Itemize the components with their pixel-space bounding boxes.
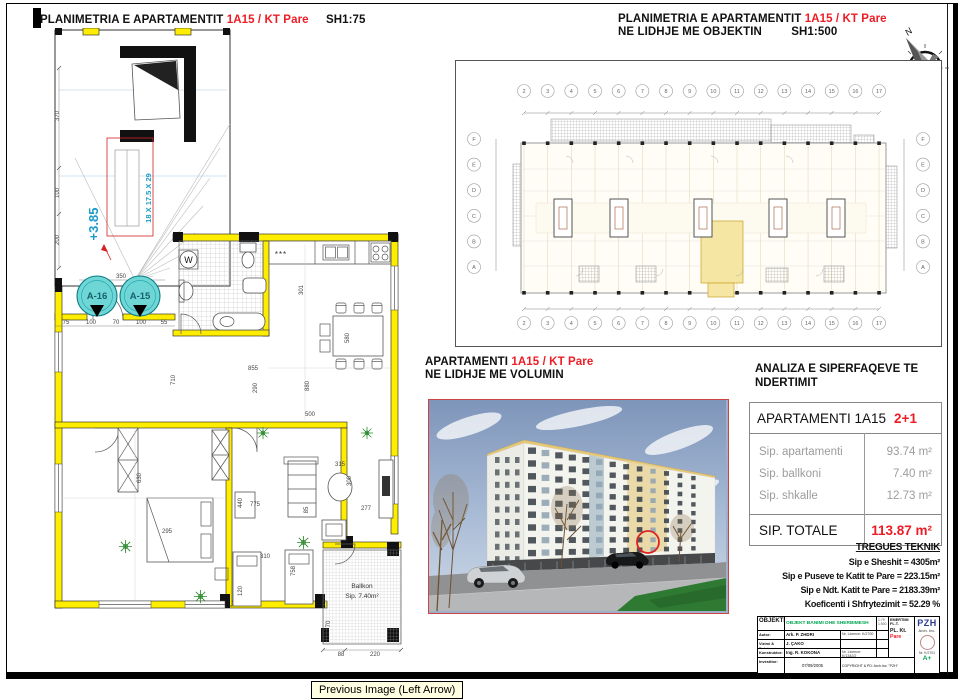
dining-table [333, 316, 383, 356]
svg-text:9: 9 [688, 89, 691, 95]
svg-text:9: 9 [688, 321, 691, 327]
armchair [322, 520, 346, 540]
row-extra: Nr. Licence: K/1342/2 [840, 648, 876, 657]
svg-text:12: 12 [758, 321, 764, 327]
area-table-header: APARTAMENTI 1A15 2+1 [750, 403, 941, 434]
objekti-label: OBJEKTI: [758, 617, 784, 630]
svg-text:C: C [472, 214, 476, 220]
objekti-value: OBJEKT BANIMI DHE SHERBIMESH [784, 617, 876, 630]
image-viewer-canvas: { "frame": { "tooltip": "Previous Image … [0, 0, 970, 691]
left-plan-title: PLANIMETRIA E APARTAMENTIT 1A15 / KT Par… [40, 14, 366, 26]
row-extra: Nr. Licence: K/2700 [840, 630, 876, 639]
tregues-line: Sip e Puseve te Katit te Pare = 223.15m² [748, 569, 940, 583]
svg-text:B: B [921, 239, 925, 245]
building-plan: 2233445566778899101011111212131314141515… [456, 61, 939, 344]
area-table-body: Sip. apartamenti 93.74 m² Sip. ballkoni … [750, 434, 941, 514]
table-row: Sip. ballkoni 7.40 m² [750, 463, 941, 485]
svg-text:710: 710 [171, 374, 177, 385]
stair-spec-label: 18 X 17.5 X 29 [144, 173, 153, 223]
emertimi-value: PL. Kt. Pare [890, 628, 913, 640]
kitchen-unit-label: *** [275, 250, 287, 259]
small-tub-icon [243, 278, 266, 293]
plant-icon [257, 427, 269, 439]
balcony-area: Sip. 7.40m² [345, 593, 379, 600]
balcony-name: Ballkon [351, 583, 373, 590]
svg-text:12: 12 [758, 89, 764, 95]
svg-text:2: 2 [522, 321, 525, 327]
svg-text:70: 70 [113, 320, 120, 326]
dining-area [320, 303, 383, 369]
row-extra [840, 639, 876, 648]
svg-text:295: 295 [162, 529, 173, 535]
svg-text:120: 120 [238, 585, 244, 596]
tregues-line: Sip e Sheshit = 4305m² [748, 555, 940, 569]
axis-a15-label: A-15 [130, 291, 151, 302]
apartment-type-badge: 2+1 [894, 411, 917, 426]
elevator-shaft [120, 46, 196, 142]
bathroom: W [179, 241, 266, 330]
tregues-heading: TREGUES TEKNIK [748, 542, 940, 553]
svg-text:7: 7 [641, 89, 644, 95]
living-room [284, 457, 393, 540]
washbasin-icon [179, 282, 193, 300]
svg-text:17: 17 [876, 89, 882, 95]
tregues-line: Sip e Ndt. Katit te Pare = 2183.39m² [748, 583, 940, 597]
svg-text:290: 290 [253, 382, 259, 393]
bedroom-1 [118, 428, 228, 580]
svg-text:500: 500 [305, 412, 316, 418]
svg-text:100: 100 [55, 187, 61, 198]
svg-text:580: 580 [345, 332, 351, 343]
svg-text:88: 88 [338, 652, 345, 658]
svg-text:315: 315 [335, 462, 346, 468]
frame-inner-line [947, 4, 948, 674]
row-value: Ark. P. ZHDRI [784, 630, 840, 639]
svg-text:6: 6 [617, 89, 620, 95]
plant-icon [119, 540, 132, 553]
svg-text:11: 11 [734, 321, 740, 327]
plant-icon [297, 536, 310, 549]
investitor-label: Investitor: [758, 657, 784, 673]
emertimi-cell: EMERTIMI FL.T. PL. Kt. Pare [888, 617, 914, 657]
svg-text:16: 16 [852, 321, 858, 327]
row-value: Ing. R. KOKONA [784, 648, 840, 657]
pzh-logo: PZH [916, 618, 938, 628]
axis-bubble-a16: A-16 [77, 276, 117, 317]
svg-text:70: 70 [326, 620, 332, 627]
svg-text:220: 220 [370, 652, 381, 658]
bathtub-icon [213, 313, 265, 330]
row-value: J. ÇAKO [784, 639, 840, 648]
pzh-mark: A+ [916, 655, 938, 662]
svg-text:85: 85 [304, 506, 310, 513]
table-row: Sip. shkalle 12.73 m² [750, 485, 941, 507]
volume-title-accent: 1A15 / KT Pare [511, 356, 593, 368]
svg-text:758: 758 [291, 565, 297, 576]
svg-text:370: 370 [55, 110, 61, 121]
svg-text:100: 100 [86, 320, 97, 326]
svg-text:5: 5 [593, 321, 596, 327]
total-row: SIP. TOTALE 113.87 m² [750, 514, 941, 545]
svg-text:E: E [472, 163, 476, 169]
row-label: Autor: [758, 630, 784, 639]
table-divider [864, 433, 865, 545]
pzh-logo-cell: PZH Arch. Inc. Nr. K/2701 A+ [914, 617, 939, 673]
pzh-stamp-icon [920, 635, 935, 650]
table-row: Sip. apartamenti 93.74 m² [750, 441, 941, 463]
svg-text:B: B [472, 239, 476, 245]
svg-text:4: 4 [570, 321, 573, 327]
axis-bubble-a15: A-15 [120, 276, 160, 317]
balcony: Ballkon Sip. 7.40m² [323, 550, 401, 644]
north-label: N [903, 26, 915, 38]
svg-text:8: 8 [664, 321, 667, 327]
left-plan-scale: SH1:75 [326, 14, 366, 26]
svg-text:E: E [921, 163, 925, 169]
svg-text:310: 310 [260, 554, 271, 560]
row-label: Vizimi & Detaje: [758, 639, 784, 648]
svg-text:880: 880 [305, 380, 311, 391]
svg-text:13: 13 [781, 89, 787, 95]
svg-text:630: 630 [137, 472, 143, 483]
spacer-cell [876, 648, 888, 657]
svg-text:15: 15 [829, 89, 835, 95]
kitchen: *** [269, 241, 391, 264]
left-plan-title-accent: 1A15 / KT Pare [227, 14, 309, 26]
pzh-sub: Arch. Inc. [916, 628, 938, 633]
building-render-photo [428, 399, 729, 614]
svg-text:2: 2 [522, 89, 525, 95]
volume-title-text: APARTAMENTI [425, 356, 508, 368]
toilet-icon [240, 243, 256, 252]
row-label: Konstruktor: [758, 648, 784, 657]
apartment-floor-plan: +3.85 18 X 17.5 X 29 [35, 28, 420, 663]
svg-text:14: 14 [805, 321, 811, 327]
svg-text:D: D [472, 188, 476, 194]
date-cell: 07/09/2005 [784, 657, 840, 673]
svg-text:C: C [921, 214, 925, 220]
svg-text:16: 16 [852, 89, 858, 95]
svg-text:300: 300 [347, 475, 353, 486]
analysis-heading-line2: NDERTIMIT [755, 376, 945, 390]
svg-text:6: 6 [617, 321, 620, 327]
left-plan-title-text: PLANIMETRIA E APARTAMENTIT [40, 14, 223, 26]
analysis-heading-line1: ANALIZA E SIPERFAQEVE TE [755, 362, 945, 376]
spacer-cell [876, 639, 888, 648]
right-plan-title-accent: 1A15 / KT Pare [805, 13, 887, 25]
washing-machine-label: W [184, 255, 193, 265]
apartment-label: APARTAMENTI 1A15 [757, 411, 886, 426]
scale-cell: 1:75 1:500 [876, 617, 888, 630]
plant-icon [361, 427, 373, 439]
svg-text:75: 75 [63, 320, 70, 326]
tregues-line: Koeficenti i Shfrytezimit = 52.29 % [748, 597, 940, 611]
svg-text:10: 10 [710, 89, 716, 95]
right-plan-scale: SH1:500 [791, 26, 837, 38]
building-plan-frame: 2233445566778899101011111212131314141515… [455, 60, 942, 347]
svg-text:13: 13 [781, 321, 787, 327]
volume-title: APARTAMENTI 1A15 / KT Pare NE LIDHJE ME … [425, 356, 593, 381]
svg-text:440: 440 [238, 497, 244, 508]
axis-a16-label: A-16 [87, 291, 108, 302]
technical-indicators: TREGUES TEKNIK Sip e Sheshit = 4305m² Si… [748, 542, 940, 611]
svg-text:D: D [921, 188, 925, 194]
right-plan-subtitle: NE LIDHJE ME OBJEKTIN [618, 26, 762, 38]
svg-text:100: 100 [136, 320, 147, 326]
spacer-cell [876, 630, 888, 639]
area-table: APARTAMENTI 1A15 2+1 Sip. apartamenti 93… [749, 402, 942, 546]
svg-text:55: 55 [161, 320, 168, 326]
svg-text:301: 301 [299, 284, 305, 295]
svg-text:4: 4 [570, 89, 573, 95]
volume-subtitle: NE LIDHJE ME VOLUMIN [425, 369, 593, 381]
double-bed [147, 498, 213, 562]
svg-text:A: A [472, 265, 476, 271]
emertimi-label: EMERTIMI FL.T. [890, 618, 913, 626]
svg-text:200: 200 [55, 234, 61, 245]
right-plan-title: PLANIMETRIA E APARTAMENTIT 1A15 / KT Par… [618, 13, 887, 38]
svg-text:14: 14 [805, 89, 811, 95]
level-label: +3.85 [86, 208, 101, 241]
copyright-cell: COPYRIGHT & PD: Arch.Inc. "PZH" [840, 657, 914, 673]
analysis-heading: ANALIZA E SIPERFAQEVE TE NDERTIMIT [755, 362, 945, 390]
viewer-tooltip: Previous Image (Left Arrow) [311, 681, 463, 699]
svg-text:A: A [921, 265, 925, 271]
svg-text:277: 277 [361, 506, 372, 512]
svg-text:855: 855 [248, 366, 259, 372]
svg-text:3: 3 [546, 89, 549, 95]
svg-text:350: 350 [116, 274, 127, 280]
title-block: OBJEKTI: OBJEKT BANIMI DHE SHERBIMESH 1:… [757, 616, 940, 674]
pzh-nr: Nr. K/2701 [916, 651, 938, 655]
svg-text:5: 5 [593, 89, 596, 95]
svg-text:11: 11 [734, 89, 740, 95]
svg-text:8: 8 [664, 89, 667, 95]
svg-text:17: 17 [876, 321, 882, 327]
svg-text:3: 3 [546, 321, 549, 327]
svg-text:10: 10 [710, 321, 716, 327]
svg-text:15: 15 [829, 321, 835, 327]
svg-text:7: 7 [641, 321, 644, 327]
plant-icon [194, 590, 207, 603]
svg-text:775: 775 [250, 502, 261, 508]
right-plan-title-text: PLANIMETRIA E APARTAMENTIT [618, 13, 801, 25]
